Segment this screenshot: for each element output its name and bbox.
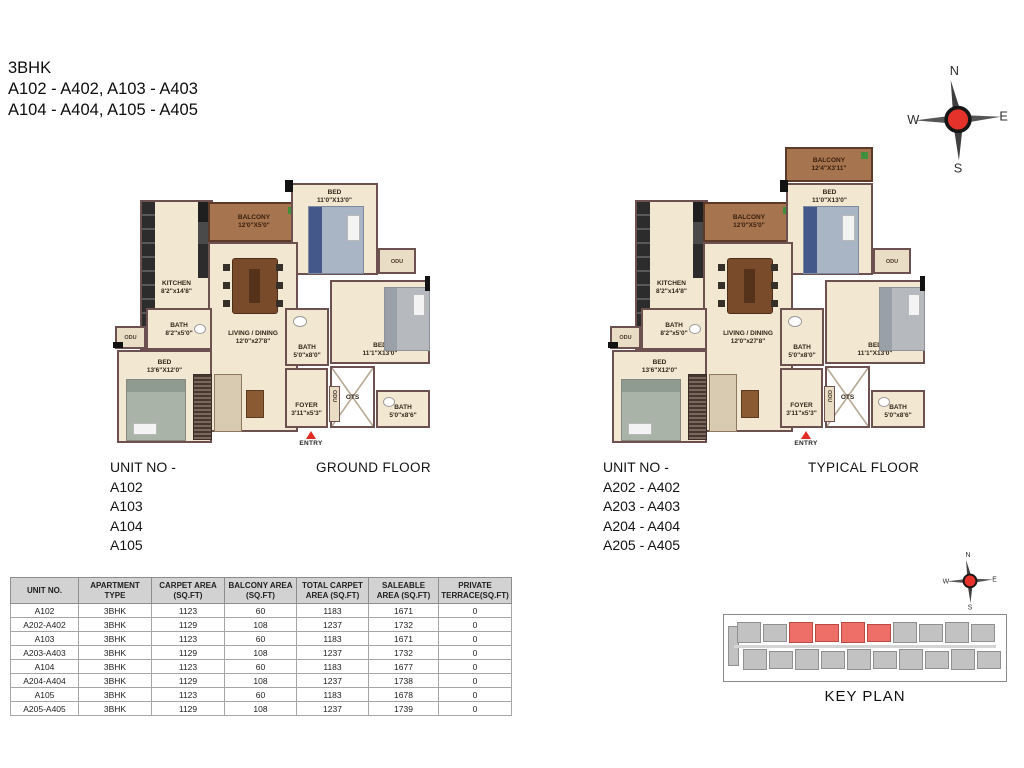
- cell-unit-no: A102: [11, 604, 79, 618]
- cell-terrace: 0: [439, 688, 512, 702]
- cell-unit-no: A203-A403: [11, 646, 79, 660]
- cell-total-carpet: 1237: [297, 702, 369, 716]
- cell-saleable: 1677: [369, 660, 439, 674]
- compass-label-n: N: [966, 552, 971, 559]
- room-foyer: FOYER 3'11"x5'3": [285, 368, 328, 428]
- cell-terrace: 0: [439, 660, 512, 674]
- cell-carpet: 1129: [152, 618, 225, 632]
- col-header-private-terrace: PRIVATE TERRACE(SQ.FT): [439, 578, 512, 604]
- wardrobe-icon: [688, 374, 707, 440]
- wall-accent: [920, 276, 925, 291]
- cell-terrace: 0: [439, 646, 512, 660]
- unit-list-heading: UNIT NO -: [110, 458, 176, 478]
- cell-total-carpet: 1183: [297, 660, 369, 674]
- cell-unit-no: A202-A402: [11, 618, 79, 632]
- cell-total-carpet: 1237: [297, 618, 369, 632]
- room-label: BATH 5'0"x8'6": [378, 404, 428, 419]
- room-bed-3: BED 11'1"X13'0": [825, 280, 925, 364]
- table-row: A1053BHK112360118316780: [11, 688, 512, 702]
- bed-icon: [803, 206, 859, 274]
- cell-type: 3BHK: [79, 618, 152, 632]
- room-label: BATH 8'2"x5'0": [148, 322, 210, 337]
- room-odu-right: ODU: [873, 248, 911, 274]
- cell-saleable: 1739: [369, 702, 439, 716]
- floor-plan-typical: BALCONY 12'4"X3'11" KITCHEN 8'2"x14'8" B…: [608, 180, 928, 465]
- compass-center: [946, 108, 970, 132]
- entry-arrow-icon: [306, 431, 316, 439]
- unit-item: A205 - A405: [603, 536, 680, 556]
- table-row: A204-A4043BHK1129108123717380: [11, 674, 512, 688]
- wall-accent: [608, 342, 618, 348]
- cell-balcony: 108: [225, 702, 297, 716]
- cell-carpet: 1123: [152, 688, 225, 702]
- keyplan-block: [737, 622, 761, 643]
- unit-item: A102: [110, 478, 176, 498]
- table-row: A202-A4023BHK1129108123717320: [11, 618, 512, 632]
- cell-balcony: 108: [225, 674, 297, 688]
- cell-balcony: 108: [225, 618, 297, 632]
- cell-balcony: 60: [225, 632, 297, 646]
- table-row: A205-A4053BHK1129108123717390: [11, 702, 512, 716]
- bed-icon: [126, 379, 186, 441]
- col-header-unit-no: UNIT NO.: [11, 578, 79, 604]
- keyplan-block: [873, 651, 897, 669]
- table-row: A1033BHK112360118316710: [11, 632, 512, 646]
- room-bed-3: BED 11'1"X13'0": [330, 280, 430, 364]
- keyplan-block: [899, 649, 923, 670]
- col-header-carpet-area: CARPET AREA (SQ.FT): [152, 578, 225, 604]
- cell-type: 3BHK: [79, 674, 152, 688]
- room-label: FOYER 3'11"x5'3": [287, 402, 326, 417]
- key-plan: [723, 614, 1007, 682]
- bed-icon: [308, 206, 364, 274]
- room-label: LIVING / DINING 12'0"x27'8": [705, 330, 791, 345]
- table-row: A1043BHK112360118316770: [11, 660, 512, 674]
- room-bath-2: BATH 5'0"x8'0": [285, 308, 329, 366]
- keyplan-block: [951, 649, 975, 670]
- cell-terrace: 0: [439, 674, 512, 688]
- room-bed-1: BED 11'0"X13'0": [291, 183, 378, 275]
- col-header-total-carpet-area: TOTAL CARPET AREA (SQ.FT): [297, 578, 369, 604]
- room-label: BATH 8'2"x5'0": [643, 322, 705, 337]
- keyplan-block: [945, 622, 969, 643]
- cell-terrace: 0: [439, 632, 512, 646]
- compass-label-n: N: [950, 63, 959, 78]
- room-label: KITCHEN 8'2"x14'8": [637, 280, 706, 295]
- compass-rose: N E W S: [906, 62, 1010, 175]
- cell-saleable: 1671: [369, 604, 439, 618]
- room-bed-2: BED 13'6"X12'0": [612, 350, 707, 443]
- dining-table-icon: [232, 258, 278, 314]
- cell-saleable: 1678: [369, 688, 439, 702]
- unit-list-typical: UNIT NO - A202 - A402 A203 - A403 A204 -…: [603, 458, 680, 556]
- unit-range-line-2: A104 - A404, A105 - A405: [8, 100, 198, 121]
- unit-item: A203 - A403: [603, 497, 680, 517]
- keyplan-block: [977, 651, 1001, 669]
- entry-marker: ENTRY: [786, 431, 826, 447]
- compass-label-s: S: [954, 160, 963, 175]
- keyplan-corridor: [734, 645, 996, 648]
- cell-carpet: 1123: [152, 660, 225, 674]
- cell-saleable: 1732: [369, 618, 439, 632]
- room-label: LIVING / DINING 12'0"x27'8": [210, 330, 296, 345]
- bed-icon: [384, 287, 430, 351]
- cell-unit-no: A105: [11, 688, 79, 702]
- cell-type: 3BHK: [79, 646, 152, 660]
- compass-label-e: E: [992, 576, 997, 583]
- unit-item: A104: [110, 517, 176, 537]
- key-plan-title: KEY PLAN: [723, 688, 1007, 705]
- room-label: BALCONY 12'4"X3'11": [787, 157, 871, 172]
- keyplan-block-highlighted: [815, 624, 839, 642]
- room-label: BATH 5'0"x8'0": [782, 344, 822, 359]
- room-label: BED 11'0"X13'0": [293, 189, 376, 204]
- keyplan-row-bottom: [743, 649, 1001, 670]
- cell-saleable: 1738: [369, 674, 439, 688]
- unit-item: A105: [110, 536, 176, 556]
- cell-terrace: 0: [439, 604, 512, 618]
- cell-unit-no: A204-A404: [11, 674, 79, 688]
- unit-item: A202 - A402: [603, 478, 680, 498]
- room-label: BED 13'6"X12'0": [119, 359, 210, 374]
- table-row: A1023BHK112360118316710: [11, 604, 512, 618]
- unit-list-heading: UNIT NO -: [603, 458, 680, 478]
- keyplan-block: [847, 649, 871, 670]
- room-bath-3: BATH 5'0"x8'6": [871, 390, 925, 428]
- keyplan-block: [821, 651, 845, 669]
- keyplan-block: [893, 622, 917, 643]
- cell-unit-no: A104: [11, 660, 79, 674]
- room-label: BATH 5'0"x8'6": [873, 404, 923, 419]
- cell-terrace: 0: [439, 702, 512, 716]
- room-balcony-top: BALCONY 12'4"X3'11": [785, 147, 873, 182]
- compass-center: [964, 575, 977, 588]
- floor-plan-ground: KITCHEN 8'2"x14'8" BALCONY 12'0"X5'0" BE…: [113, 180, 433, 465]
- keyplan-block: [925, 651, 949, 669]
- floorplan-page: { "title": { "line1": "3BHK", "line2": "…: [0, 0, 1024, 768]
- table-header-row: UNIT NO. APARTMENT TYPE CARPET AREA (SQ.…: [11, 578, 512, 604]
- cell-saleable: 1671: [369, 632, 439, 646]
- cell-total-carpet: 1237: [297, 646, 369, 660]
- compass-label-s: S: [968, 604, 973, 610]
- wall-accent: [780, 180, 788, 192]
- unit-range-line-1: A102 - A402, A103 - A403: [8, 79, 198, 100]
- keyplan-block: [795, 649, 819, 670]
- table-row: A203-A4033BHK1129108123717320: [11, 646, 512, 660]
- room-bed-2: BED 13'6"X12'0": [117, 350, 212, 443]
- room-bath-1: BATH 8'2"x5'0": [146, 308, 212, 350]
- wall-accent: [285, 180, 293, 192]
- bed-icon: [621, 379, 681, 441]
- cell-total-carpet: 1183: [297, 688, 369, 702]
- unit-type-heading: 3BHK: [8, 58, 198, 79]
- keyplan-row-top: [737, 622, 995, 643]
- title-block: 3BHK A102 - A402, A103 - A403 A104 - A40…: [8, 58, 198, 121]
- keyplan-block-highlighted: [841, 622, 865, 643]
- area-table: UNIT NO. APARTMENT TYPE CARPET AREA (SQ.…: [10, 577, 512, 716]
- room-label: KITCHEN 8'2"x14'8": [142, 280, 211, 295]
- wall-accent: [425, 276, 430, 291]
- keyplan-block-highlighted: [867, 624, 891, 642]
- room-odu-shaft: ODU: [824, 386, 835, 422]
- cell-type: 3BHK: [79, 604, 152, 618]
- compass-label-e: E: [999, 108, 1008, 123]
- dining-table-icon: [727, 258, 773, 314]
- keyplan-block: [971, 624, 995, 642]
- unit-item: A204 - A404: [603, 517, 680, 537]
- floor-label-typical: TYPICAL FLOOR: [808, 460, 919, 475]
- room-odu-right: ODU: [378, 248, 416, 274]
- cell-type: 3BHK: [79, 632, 152, 646]
- keyplan-block: [763, 624, 787, 642]
- cell-carpet: 1129: [152, 646, 225, 660]
- cell-balcony: 108: [225, 646, 297, 660]
- keyplan-block: [919, 624, 943, 642]
- room-bath-3: BATH 5'0"x8'6": [376, 390, 430, 428]
- room-odu-shaft: ODU: [329, 386, 340, 422]
- floor-label-ground: GROUND FLOOR: [316, 460, 431, 475]
- cell-total-carpet: 1183: [297, 632, 369, 646]
- cell-unit-no: A103: [11, 632, 79, 646]
- room-foyer: FOYER 3'11"x5'3": [780, 368, 823, 428]
- compass-label-w: W: [943, 578, 950, 585]
- cell-total-carpet: 1183: [297, 604, 369, 618]
- cell-saleable: 1732: [369, 646, 439, 660]
- room-label: BED 11'0"X13'0": [788, 189, 871, 204]
- entry-arrow-icon: [801, 431, 811, 439]
- wardrobe-icon: [193, 374, 212, 440]
- room-balcony: BALCONY 12'0"X5'0": [208, 202, 300, 242]
- col-header-apartment-type: APARTMENT TYPE: [79, 578, 152, 604]
- col-header-balcony-area: BALCONY AREA (SQ.FT): [225, 578, 297, 604]
- entry-marker: ENTRY: [291, 431, 331, 447]
- wall-accent: [113, 342, 123, 348]
- cell-type: 3BHK: [79, 702, 152, 716]
- keyplan-block-highlighted: [789, 622, 813, 643]
- room-label: BATH 5'0"x8'0": [287, 344, 327, 359]
- cell-carpet: 1129: [152, 702, 225, 716]
- room-label: BALCONY 12'0"X5'0": [705, 214, 793, 229]
- room-bed-1: BED 11'0"X13'0": [786, 183, 873, 275]
- room-label: FOYER 3'11"x5'3": [782, 402, 821, 417]
- unit-item: A103: [110, 497, 176, 517]
- cell-balcony: 60: [225, 688, 297, 702]
- room-bath-1: BATH 8'2"x5'0": [641, 308, 707, 350]
- room-balcony: BALCONY 12'0"X5'0": [703, 202, 795, 242]
- cell-type: 3BHK: [79, 660, 152, 674]
- room-label: BALCONY 12'0"X5'0": [210, 214, 298, 229]
- keyplan-block: [743, 649, 767, 670]
- cell-carpet: 1123: [152, 604, 225, 618]
- bed-icon: [879, 287, 925, 351]
- cell-terrace: 0: [439, 618, 512, 632]
- unit-list-ground: UNIT NO - A102 A103 A104 A105: [110, 458, 176, 556]
- cell-carpet: 1129: [152, 674, 225, 688]
- room-label: BED 13'6"X12'0": [614, 359, 705, 374]
- cell-carpet: 1123: [152, 632, 225, 646]
- cell-balcony: 60: [225, 604, 297, 618]
- compass-label-w: W: [907, 112, 919, 127]
- keyplan-block: [769, 651, 793, 669]
- cell-balcony: 60: [225, 660, 297, 674]
- cell-total-carpet: 1237: [297, 674, 369, 688]
- keyplan-compass-rose: N E W S: [942, 550, 998, 611]
- cell-unit-no: A205-A405: [11, 702, 79, 716]
- cell-type: 3BHK: [79, 688, 152, 702]
- col-header-saleable-area: SALEABLE AREA (SQ.FT): [369, 578, 439, 604]
- room-bath-2: BATH 5'0"x8'0": [780, 308, 824, 366]
